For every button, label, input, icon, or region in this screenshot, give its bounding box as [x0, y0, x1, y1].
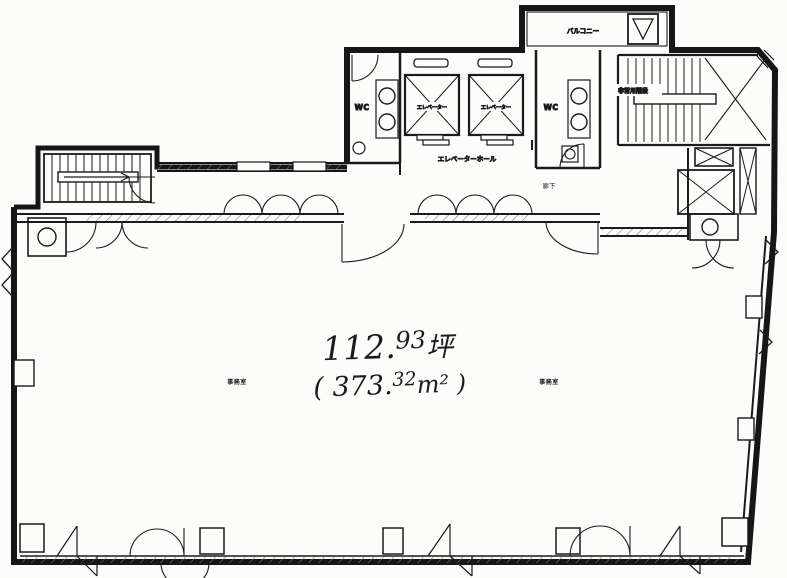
emergency-stairs-label: 非常用階段: [618, 87, 648, 95]
floor-plan-drawing: WC エレベーター エレベーター エレベーターホール WC: [0, 0, 787, 578]
toilet-fixture: [571, 88, 587, 104]
sink-fixture: [702, 219, 718, 235]
wc-left-room: WC: [347, 50, 400, 163]
elevator-core: エレベーター エレベーター エレベーターホール: [400, 59, 532, 175]
corridor-label: 廊下: [543, 181, 557, 190]
top-left-service-room: [28, 218, 96, 256]
area-tsubo: 112.93坪: [321, 325, 457, 369]
balcony-label: バルコニー: [567, 27, 599, 35]
office-left-label: 事務室: [227, 378, 247, 386]
emergency-staircase: 非常用階段: [604, 55, 770, 145]
door-arc: [352, 55, 378, 81]
door-arcs-down: [96, 222, 598, 262]
sink-fixture: [38, 228, 56, 246]
balcony: バルコニー: [527, 12, 667, 46]
sink-fixture: [353, 142, 365, 154]
door-arcs: [692, 240, 734, 268]
elevator-left-label: エレベーター: [417, 104, 447, 111]
toilet-fixture: [379, 88, 395, 104]
left-staircase: [44, 154, 155, 203]
corridor: 廊下: [543, 181, 557, 190]
toilet-fixture: [571, 114, 587, 130]
hatch-triangle-icon: [633, 19, 653, 39]
door-arc: [66, 222, 96, 252]
wc-left-label: WC: [355, 103, 370, 112]
floor-plan-page: WC エレベーター エレベーター エレベーターホール WC: [0, 0, 787, 578]
area-sqm: ( 373.32m² ): [313, 366, 467, 403]
wc-right-label: WC: [544, 103, 559, 112]
toilet-fixture: [379, 114, 395, 130]
left-wall-windows: [2, 246, 34, 386]
elevator-hall-label: エレベーターホール: [438, 154, 497, 163]
office-area: 事務室 事務室 112.93坪 ( 373.32m² ): [227, 325, 559, 404]
office-right-label: 事務室: [539, 378, 559, 386]
counterweight: [414, 59, 448, 67]
bottom-wall-windows: [20, 524, 744, 578]
counterweight: [478, 59, 512, 67]
wc-right-room: WC: [536, 50, 600, 168]
elevator-right-label: エレベーター: [481, 104, 511, 111]
main-room-top-wall: [14, 195, 688, 262]
top-right-service-room: [690, 214, 738, 268]
door-arc: [560, 144, 584, 168]
